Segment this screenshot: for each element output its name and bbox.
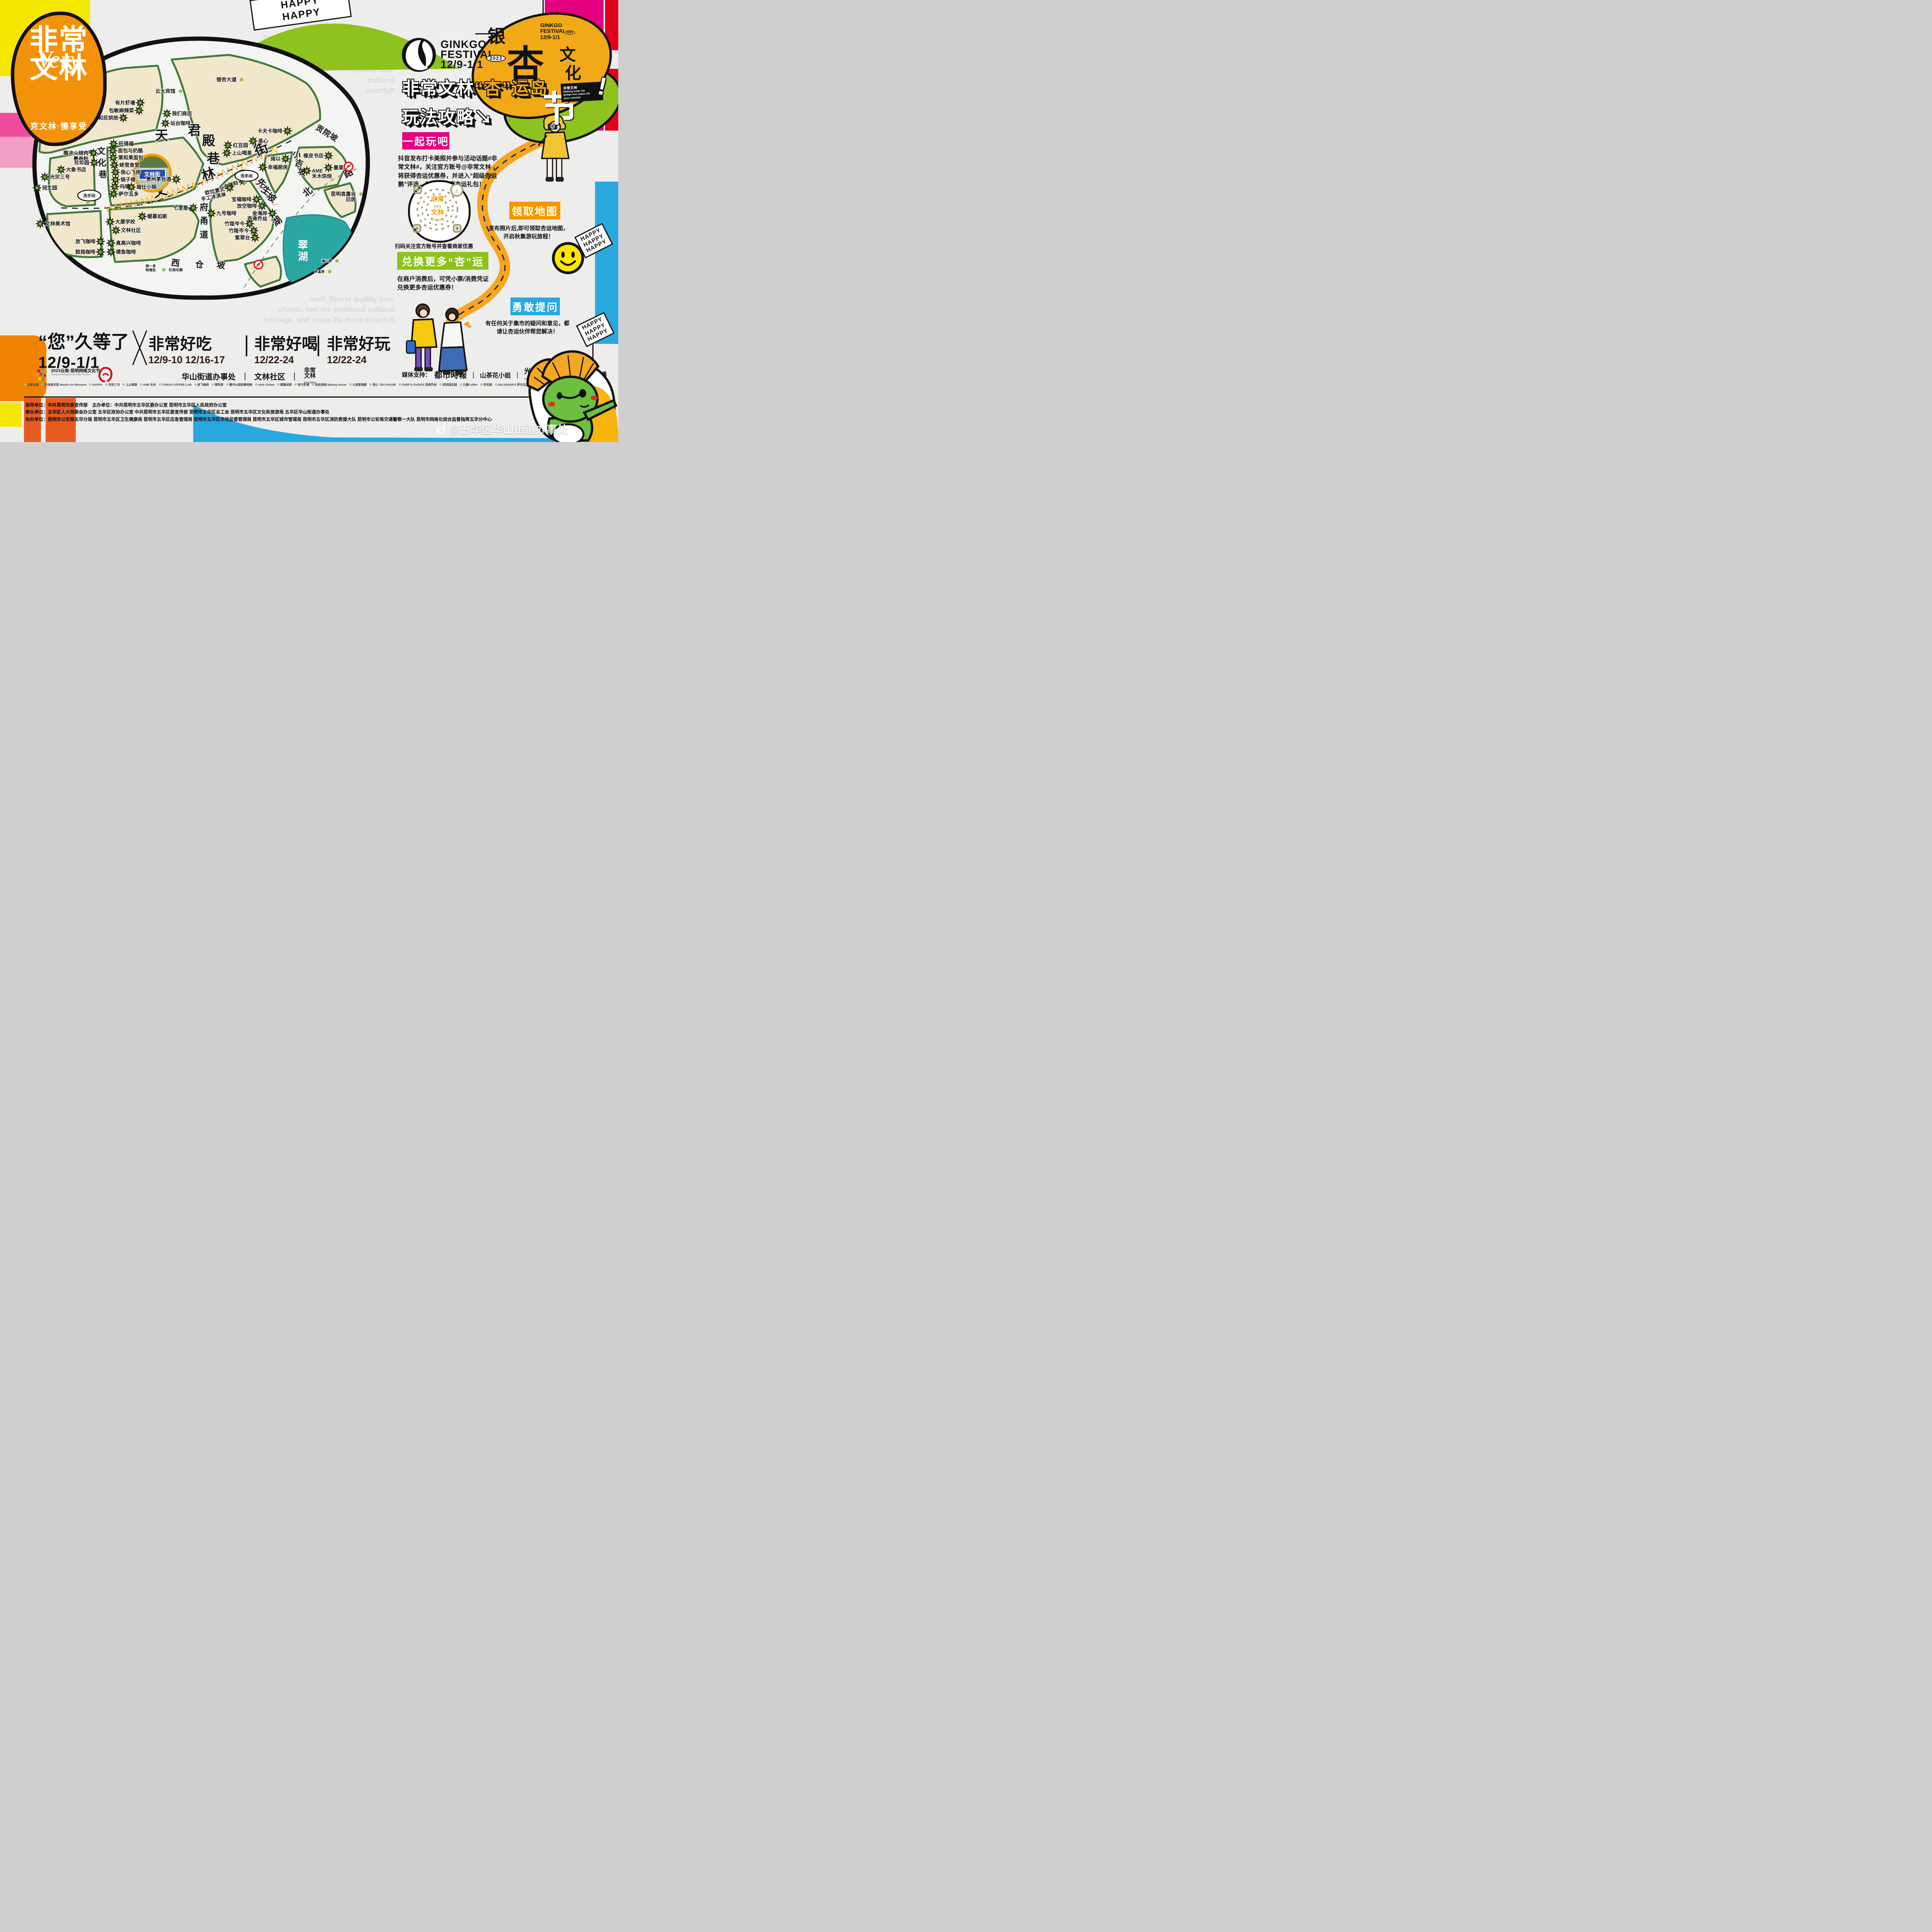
map-poi: 甲溪亭 [314,269,332,274]
partner-logo: TORCH COFFEE LAB [159,381,192,389]
map-poi: 我心飞扬 [112,168,141,176]
map-poi: 大象书店 [57,166,86,173]
poi-label: 红豆园 [233,143,248,148]
poi-label: 珍珍园 [74,160,89,166]
cuihu-lake [283,215,354,291]
map-poi: 鼓捣咖啡 [75,248,104,256]
internet-festival-name: 2023云南·昆明网络文化节 [51,369,100,374]
partner-logo: 栗和果 [212,381,224,389]
corner-ginkgo: GINKGO [540,22,566,28]
partner-logo: 光宗三号 [105,381,120,389]
map-poi: 放飞咖啡 [75,238,104,245]
map-poi: 暖慕如斯 [138,213,167,220]
poi-label: 卡夫卡咖啡 [257,128,282,134]
poi-label: 金海岸 [252,211,267,216]
no-turn-sign-icon: ↶ [344,162,353,171]
poi-label: 幸福厨房 [268,165,288,170]
community-label: 文林社区 [254,371,285,382]
brand-logo-blob: 非常 文林 Very 克文林·慢享受 [11,12,107,146]
map-poi: 幸福厨房 [259,163,288,171]
map-poi: 文林美术馆 [36,220,70,228]
douyin-qr-code: ♪ 非常 Very 文林 克文林·慢享受 [408,180,471,243]
credits-block: 指导单位：中共昆明市委宣传部 主办单位：中共昆明市五华区委办公室 昆明市五华区人… [26,402,492,423]
poi-label: 西弗乔丝 [247,216,267,222]
map-poi: 姥倌食堂 [111,161,139,169]
poi-label: 锅子楼 [121,177,136,183]
qr-logo-l2: 文林 [431,209,444,216]
toilet-label: 洗手间 [83,193,95,198]
poi-label: 文林美术馆 [45,221,70,227]
event-3-name: 非常好玩 [327,331,390,354]
ask-badge: 勇敢提问 [510,298,560,315]
poi-label: 九号咖啡 [216,211,236,216]
partner-logo: 七里星猪脚 [349,381,367,389]
poi-label: 紫翠台 [235,235,250,241]
map-poi: 七里星 [173,204,197,212]
poi-label: 昆明袁嘉谷 [331,191,356,197]
map-poi: 冠生园 [33,184,57,192]
poi-label: 橡皮书店 [303,153,323,159]
partner-logo: 暖慕如斯 [277,381,292,389]
redeem-paragraph: 在商户消费后，可凭小票/消费凭证兑换更多杏运优惠券！ [397,275,494,293]
credit-line: 牵头单位：五华区人大常委会办公室 五华区政协办公室 中共昆明市五华区委宣传部 昆… [26,409,492,416]
claim-map-badge: 领取地图 [509,202,560,219]
poi-label: 阔以 [270,156,281,162]
poi-label: 暖慕如斯 [147,214,167,219]
partner-logo: CHEF'S CHOICE 西弗乔丝 [399,381,437,389]
mini-brand-l2: 文林 [304,372,316,379]
map-poi: 宝福咖啡 [231,196,260,203]
title-line2: 玩法攻略 [402,107,474,127]
poi-label: 红烛长廊 [169,267,183,272]
street-name-char: 巷 [206,151,220,166]
poi-label: 大象书店 [66,167,86,173]
partner-logo: 昆明冠生园 [439,381,457,389]
badge-logo-1: 非常 [563,86,570,90]
map-poi: 萨尔瓦多 [110,190,139,198]
corner-char-xing: 杏 [507,34,544,88]
title-white: 非常文林 [402,78,474,98]
poi-label: 姥倌食堂 [119,162,139,168]
street-name-char: 府 [200,202,208,212]
qr-center-logo: 非常 Very 文林 克文林·慢享受 [410,196,465,222]
redeem-badge: 兑换更多“杏”运 [397,252,488,270]
map-poi: 放空咖啡 [236,202,266,210]
poi-label: 旧居 [346,197,356,202]
map-poi: 文林社区 [112,226,141,234]
map-poi: 紫翠台 [235,234,259,241]
map-poi: 我们商店 [163,110,192,117]
corner-festival: FESTIVAL [540,28,566,34]
ginkgo-leaf-icon [401,37,437,73]
corner-char-yin: 银 [488,22,505,48]
badge-logo-2: 文林 [570,86,577,90]
partner-logos-row: 五華文旅文林美术馆 Wenlin Art MuseumKAFKA光宗三号上山喝茶… [24,381,594,389]
poi-label: 大晟学校 [115,219,136,225]
partner-logo: Holo Gelato [255,381,274,389]
street-name-char: 天 [155,128,168,143]
map-poi: 大晟学校 [106,218,136,226]
event-2-name: 非常好喝 [254,331,318,354]
qr-logo-script: Very [434,204,441,209]
event-1-name: 非常好吃 [148,331,225,354]
corner-dates: 12/9-1/1 [540,34,566,40]
map-poi: 珍珍园 [74,159,98,167]
map-poi: 摸鱼咖啡 [107,248,136,256]
poi-label: 腾冲火烧肉 [63,150,88,156]
map-poi: 竹隐岑今 [224,220,253,228]
internet-festival-logo-icon [34,367,49,383]
qr-logo-l1: 非常 [431,196,444,203]
event-3-dates: 12/22-24 [327,354,390,366]
partner-logo: 有片虾塘 [294,381,309,389]
partner-logo: 九號Coffee [460,381,478,389]
street-name-char: 仓 [194,259,204,270]
street-name-char: 文 [97,146,106,156]
event-2: 非常好喝 12/22-24 [254,331,318,366]
street-name-char: 西 [170,258,180,269]
map-poi: 旺得福 [110,140,134,148]
partner-logo: 茶心 TEA HOUSE [369,381,396,389]
street-name-char: 坡 [216,260,226,270]
street-office-label: 华山街道办事处 [182,371,236,382]
corner-ginkgo-wordmark: GINKGO FESTIVAL 2023 12/9-1/1 [540,22,566,40]
street-name-char: 殿 [202,134,215,148]
credit-line: 协办单位：昆明市公安局五华分局 昆明市五华区卫生健康局 昆明市五华区应急管理局 … [26,416,492,423]
poi-label: 鼓捣咖啡 [75,249,95,255]
poi-label: 闻一多 [145,264,156,268]
poi-label: 宝福咖啡 [231,197,252,202]
poi-label: 我们商店 [172,111,192,117]
poi-label: 放空咖啡 [236,203,257,209]
watermark-handle: @五华区华山街道办事处 [449,421,568,437]
poi-label: 有片虾塘 [115,100,135,106]
tiktok-note-icon: ♪ [455,187,459,194]
poi-label: 上山喝茶 [232,150,252,156]
toilet-label: 洗手间 [240,173,253,179]
poi-label: 旺得福 [119,141,134,147]
partner-logo: 珍珍园 [480,381,492,389]
event-1: 非常好吃 12/9-10 12/16-17 [148,331,225,366]
bottom-rule [24,396,593,398]
title-yellow-quote: “杏” [474,78,512,98]
partner-logo: 五華文旅 [24,381,39,389]
poi-label: 竹隐岑今 [228,228,249,234]
poi-label: 栗和果面包 [118,155,143,161]
poi-label: 海心亭 [321,259,332,263]
couple-illustration [403,300,472,379]
internet-festival-logo-text: 2023云南·昆明网络文化节 Yunnan Kunming Internet C… [51,369,100,376]
map-poi: 橡皮书店 [303,152,332,160]
poi-label: 面包与奶酪 [118,148,143,154]
poi-label: 我心飞扬 [121,170,141,175]
poi-label: 萨尔瓦多 [119,191,139,197]
map-poi: 锅子楼 [112,176,136,184]
weibo-icon [435,423,446,435]
map-poi: 竹隐岑今 [228,227,258,235]
map-poi: 上山喝茶 [223,149,252,157]
poi-label: 摸鱼咖啡 [116,249,136,255]
poi-label: 七里星 [173,205,188,211]
street-name-char: 道 [200,230,208,240]
qr-caption: 扫码关注官方账号并查看商家优惠 [395,243,488,250]
event-3: 非常好玩 12/22-24 [327,331,390,366]
claim-map-paragraph: 发布照片后,即可领取杏运地图，开启秋集游玩旅程！ [486,225,571,241]
partner-logo: 上山喝茶 [122,381,137,389]
poi-label: 禾木烘焙 [312,173,332,179]
street-name-char: 化 [98,158,106,168]
poi-label: 包敏麻辣菜 [109,108,134,114]
poi-label: 冠生园 [42,185,57,191]
festival-dates: 12/9-1/1 [440,60,495,70]
title-arrow: ↘ [474,107,493,127]
poi-label: 贵州茅台酒 [146,177,171,182]
weibo-watermark: @五华区华山街道办事处 [435,421,568,437]
partner-logo: 文林美术馆 Wenlin Art Museum [41,381,87,389]
partner-logo: AME 禾木 [140,381,156,389]
map-poi: 端仕小锅 [128,183,156,191]
poi-label: 文林社区 [121,228,141,233]
map-poi: 有片虾塘 [115,99,144,107]
poi-label: 竹隐岑今 [224,221,245,227]
poi-label: 云大宾馆 [155,88,175,94]
poi-label: 端仕小锅 [136,184,156,190]
brand-logo-script: Very [14,45,103,74]
poi-label: 站台咖啡 [170,121,190,126]
map-poi: 红豆园 [224,141,248,149]
ginkgo-festival-wordmark: GINKGO FESTIVAL 2023 12/9-1/1 [440,39,495,69]
poi-label: 放飞咖啡 [75,239,95,245]
partner-logo: 和民烘焙 Baking house [312,381,346,389]
credit-line: 指导单位：中共昆明市委宣传部 主办单位：中共昆明市五华区委办公室 昆明市五华区人… [26,402,492,409]
street-name-char: 翠 [298,239,308,251]
poster-root: Stroll in the aroma of coffee, immersecr… [0,0,618,442]
poi-label: 光宗三号 [49,174,70,180]
poi-label: 茶心 [258,138,268,144]
no-turn-sign-icon: ↶ [254,260,263,269]
poi-label: 墨翠 [333,165,344,171]
event-1-dates: 12/9-10 12/16-17 [148,354,225,366]
partner-logo: KAFKA [89,381,102,389]
street-name-char: 甬 [200,216,208,226]
ask-paragraph: 有任何关于集市的疑问和意见，都请让杏运伙伴帮您解决！ [484,320,571,336]
poi-label: 银杏大道 [216,77,236,83]
poi-label: 真高兴咖啡 [116,240,141,246]
teaser-title: “您”久等了 [38,327,129,354]
festival-year-badge: 2023 [486,55,506,62]
event-2-dates: 12/22-24 [254,354,318,366]
brand-logo-subtitle: 克文林·慢享受 [14,120,103,132]
map-poi: 闻一多殉难处 [145,264,156,272]
poi-label: AME [312,168,323,174]
street-name-char: 湖 [298,251,308,262]
map-poi: 九号咖啡 [207,209,236,217]
partner-logo: 放飞咖啡 [194,381,209,389]
event-divider-1 [246,335,247,356]
internet-festival-sub: Yunnan Kunming Internet Culture Festival [51,374,100,376]
qr-logo-sub: 克文林·慢享受 [431,219,444,221]
map-poi: 海心亭 [321,259,339,263]
bg-english-line: heritage, and make life more colorfull [240,315,394,326]
teaser-block: “您”久等了 12/9-1/1 [38,327,129,372]
play-badge: 一起玩吧 [402,132,449,150]
bg-english-line: chants, feel the profound cultural [240,305,394,315]
smiley-face [550,240,586,276]
partner-logo: 腾冲火烧肉裹卷粉 [226,381,252,389]
event-divider-2 [318,335,319,356]
map-poi: 站台咖啡 [162,119,190,127]
media-shanchahua: 山茶花小姐 [480,370,511,379]
map-poi: 光宗三号 [41,173,70,181]
street-name-char: 巷 [98,170,107,179]
poi-label: 甲溪亭 [314,269,325,274]
poi-label: 殉难处 [145,268,156,272]
